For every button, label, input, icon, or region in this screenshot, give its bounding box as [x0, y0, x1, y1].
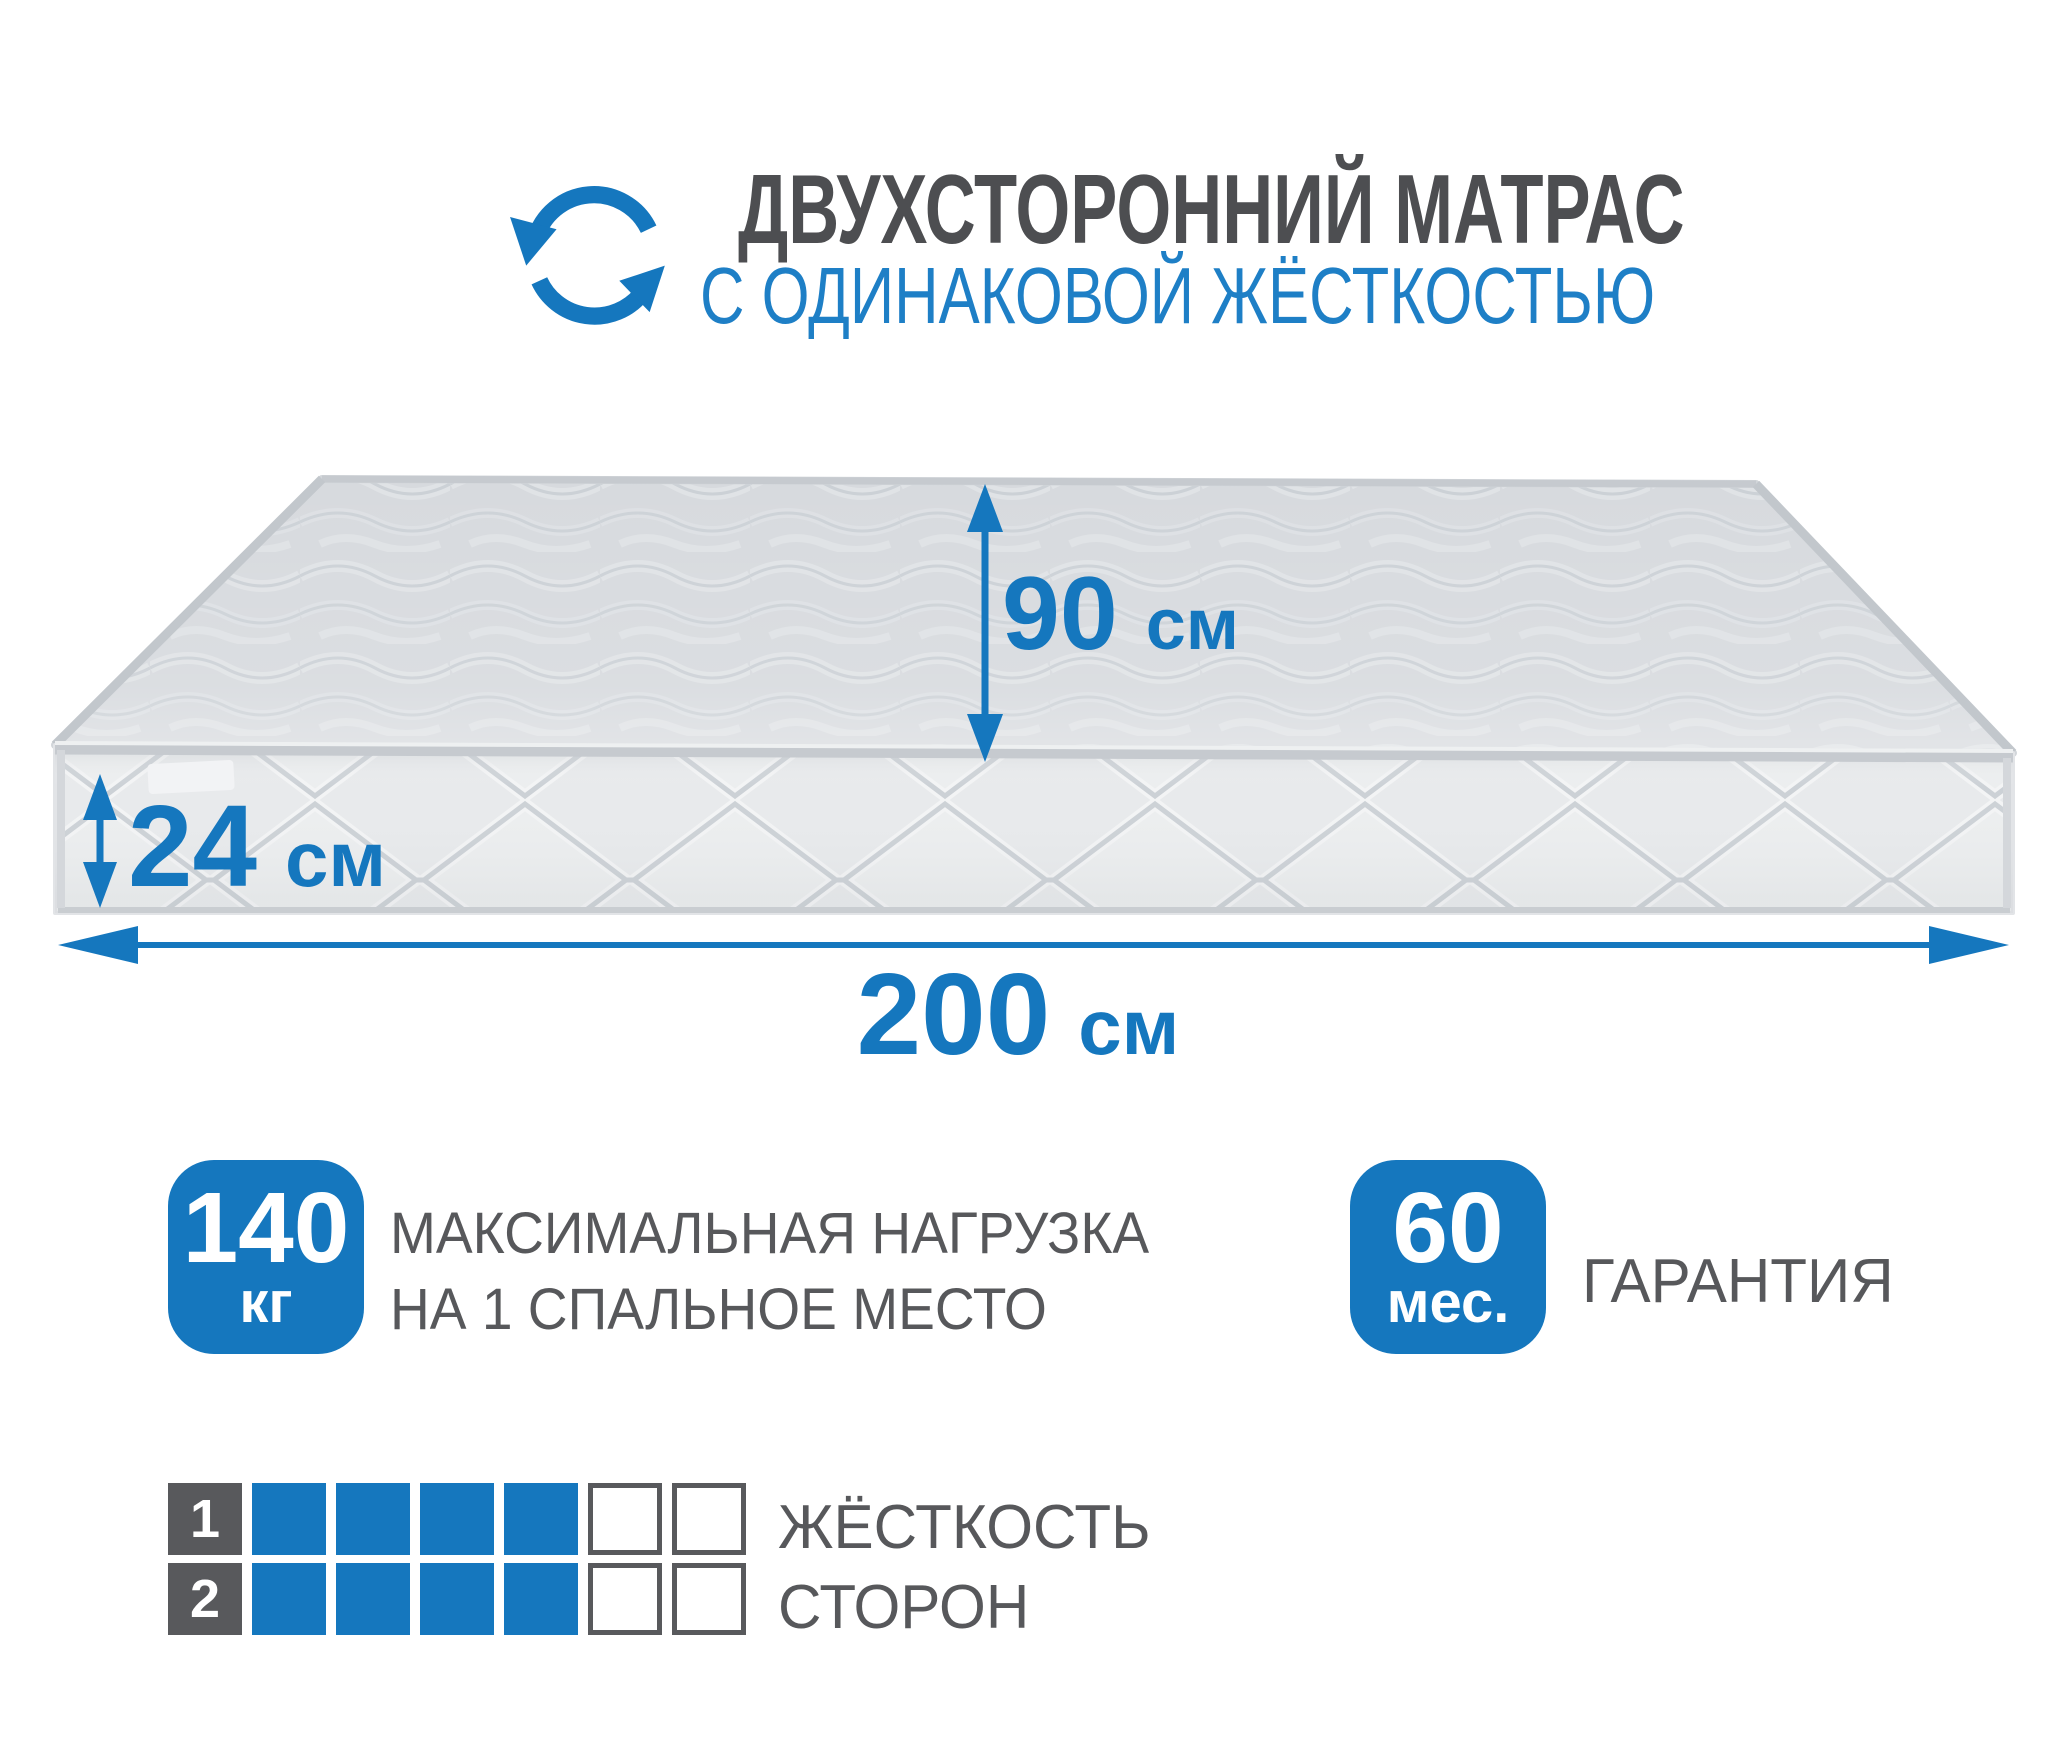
scale-cell-empty — [672, 1483, 746, 1555]
thickness-dimension-label: 24 см — [128, 788, 386, 904]
max-load-description-line1: МАКСИМАЛЬНАЯ НАГРУЗКА — [390, 1196, 1149, 1272]
scale-cell-filled — [336, 1483, 410, 1555]
scale-cell-filled — [252, 1483, 326, 1555]
scale-cell-filled — [420, 1483, 494, 1555]
max-load-badge: 140 кг — [168, 1160, 364, 1354]
warranty-unit: мес. — [1387, 1274, 1510, 1332]
warranty-badge: 60 мес. — [1350, 1160, 1546, 1354]
width-unit: см — [1146, 589, 1239, 661]
mattress-infographic: ДВУХСТОРОННИЙ МАТРАС С ОДИНАКОВОЙ ЖЁСТКО… — [0, 0, 2048, 1757]
scale-cell-empty — [672, 1563, 746, 1635]
hardness-scale-row-1: 1 — [168, 1483, 746, 1555]
scale-cell-filled — [336, 1563, 410, 1635]
length-unit: см — [1078, 988, 1179, 1066]
warranty-label: ГАРАНТИЯ — [1582, 1246, 1894, 1317]
max-load-description: МАКСИМАЛЬНАЯ НАГРУЗКА НА 1 СПАЛЬНОЕ МЕСТ… — [390, 1196, 1149, 1348]
width-value: 90 — [1002, 562, 1118, 666]
length-dimension-label: 200 см — [718, 956, 1318, 1072]
hardness-scale-label-line2: СТОРОН — [778, 1572, 1029, 1643]
scale-cell-filled — [420, 1563, 494, 1635]
scale-row-number: 1 — [168, 1483, 242, 1555]
scale-cell-empty — [588, 1483, 662, 1555]
scale-cell-filled — [504, 1483, 578, 1555]
scale-row-number: 2 — [168, 1563, 242, 1635]
max-load-unit: кг — [239, 1274, 292, 1332]
thickness-unit: см — [285, 820, 386, 898]
max-load-value: 140 — [183, 1182, 350, 1274]
hardness-scale-row-2: 2 — [168, 1563, 746, 1635]
max-load-description-line2: НА 1 СПАЛЬНОЕ МЕСТО — [390, 1272, 1149, 1348]
hardness-scale-label-line1: ЖЁСТКОСТЬ — [778, 1492, 1151, 1563]
scale-cell-filled — [504, 1563, 578, 1635]
scale-cell-filled — [252, 1563, 326, 1635]
thickness-value: 24 — [128, 788, 257, 904]
scale-cell-empty — [588, 1563, 662, 1635]
length-value: 200 — [857, 956, 1051, 1072]
width-dimension-label: 90 см — [1002, 562, 1239, 666]
warranty-value: 60 — [1392, 1182, 1503, 1274]
